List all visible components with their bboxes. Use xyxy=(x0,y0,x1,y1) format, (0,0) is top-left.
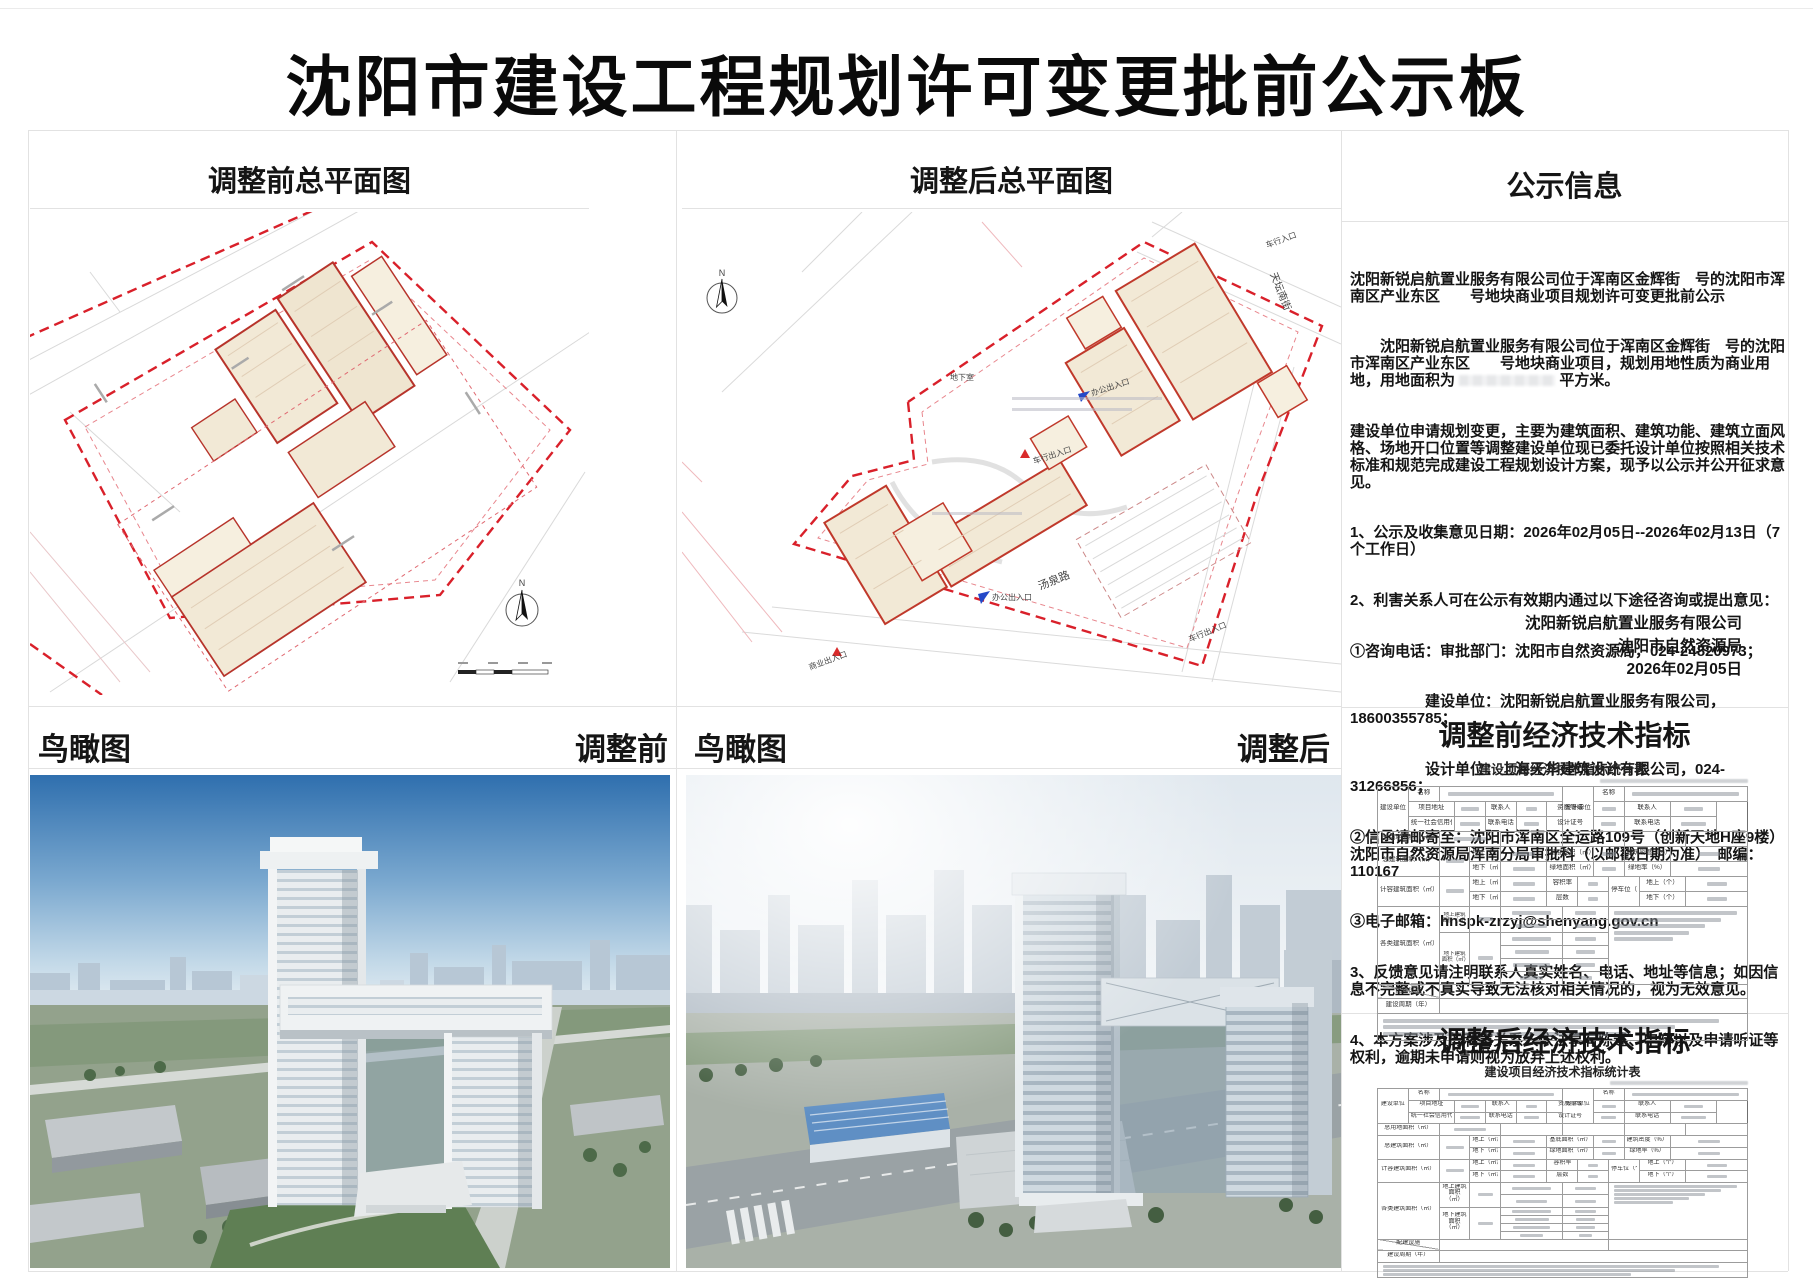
table-value-cell xyxy=(1562,831,1624,846)
table-value-cell xyxy=(1439,1239,1608,1251)
site-plan-before: N xyxy=(30,212,589,695)
table-value-cell xyxy=(1609,906,1748,984)
right-border xyxy=(1788,130,1789,1271)
table-label-cell: 建设单位 xyxy=(1378,1089,1409,1124)
aerial-after-tag: 调整后 xyxy=(1182,724,1330,769)
table-value-cell xyxy=(1686,831,1748,846)
table-value-cell xyxy=(1501,1124,1563,1136)
top-edge-line xyxy=(0,8,1813,9)
table-label-cell: 名称 xyxy=(1593,787,1624,802)
aerial-after-label: 鸟瞰图 xyxy=(694,724,787,769)
table-value-cell xyxy=(1470,1207,1501,1239)
table-label-cell: 统一社会信用代码 xyxy=(1408,1112,1454,1124)
table-label-cell: 名称 xyxy=(1408,1089,1439,1101)
header-divider xyxy=(28,130,1788,131)
table-label-cell: 联系电话 xyxy=(1624,1112,1670,1124)
table-value-cell xyxy=(1562,906,1608,919)
table-label-cell: 地下建筑面积（㎡） xyxy=(1439,932,1470,984)
table-value-cell xyxy=(1593,801,1624,816)
table-value-cell xyxy=(1562,1195,1608,1207)
economic-indicator-table: 建设单位名称设计单位名称项目地址联系人资质等级联系人统一社会信用代码联系电话设计… xyxy=(1377,786,1748,1041)
table-value-cell xyxy=(1686,1124,1748,1136)
table-label-cell: 地下（个） xyxy=(1639,891,1685,906)
table-value-cell xyxy=(1501,846,1547,861)
table-value-cell xyxy=(1501,1183,1563,1195)
table-value-cell xyxy=(1501,861,1547,876)
table-value-cell xyxy=(1501,932,1563,945)
divider-col2-col3 xyxy=(1341,130,1342,1271)
aerial-view-after xyxy=(686,775,1341,1268)
table-label-cell: 总用地面积（㎡） xyxy=(1378,1124,1440,1136)
table-value-cell xyxy=(1562,1183,1608,1195)
table-label-cell: 计容建筑面积（㎡） xyxy=(1378,1159,1440,1183)
divider-row1-row2 xyxy=(28,706,1341,707)
table-value-cell xyxy=(1562,1223,1608,1231)
table-label-cell: 地上（㎡） xyxy=(1470,846,1501,861)
plan-after-header: 调整后总平面图 xyxy=(682,158,1341,200)
redacted-area-value xyxy=(1459,375,1555,386)
table-label-cell: 设计证号 xyxy=(1547,1112,1593,1124)
notice-paragraph: 1、公示及收集意见日期：2026年02月05日--2026年02月13日（7个工… xyxy=(1350,525,1788,559)
table-label-cell: 停车位（个） xyxy=(1609,876,1640,906)
indicators-after-header: 调整后经济技术指标 xyxy=(1341,1020,1788,1060)
table-value-cell xyxy=(1439,984,1608,999)
table-value-cell xyxy=(1562,958,1608,971)
table-value-cell xyxy=(1439,1136,1470,1160)
table-value-cell xyxy=(1439,999,1747,1014)
table-label-cell: 基底面积（㎡） xyxy=(1547,1136,1593,1148)
table-label-cell: 地下建筑面积（㎡） xyxy=(1439,1207,1470,1239)
table-value-cell xyxy=(1562,971,1608,984)
table-label-cell: 总建筑面积（㎡） xyxy=(1378,1136,1440,1160)
svg-text:地下室: 地下室 xyxy=(950,372,974,382)
notice-paragraph: 沈阳新锐启航置业服务有限公司位于浑南区金辉街 号的沈阳市浑南区产业东区 号地块商… xyxy=(1350,339,1788,390)
table-label-cell: 配建设施 xyxy=(1378,984,1440,999)
table-value-cell xyxy=(1578,876,1609,891)
table-label-cell: 地上建筑面积（㎡） xyxy=(1439,906,1470,932)
table-value-cell xyxy=(1562,932,1608,945)
table-label-cell: 联系人 xyxy=(1624,801,1670,816)
table-value-cell xyxy=(1470,932,1501,984)
notice-board: 沈阳市建设工程规划许可变更批前公示板 调整前总平面图 调整后总平面图 公示信息 xyxy=(0,0,1813,1280)
aerial-view-before xyxy=(30,775,670,1268)
divider-col1-col2 xyxy=(676,130,677,1271)
table-date-smudge xyxy=(1600,779,1748,783)
table-label-cell: 统一社会信用代码 xyxy=(1408,816,1454,831)
table-value-cell xyxy=(1686,876,1748,891)
table-value-cell xyxy=(1455,801,1486,816)
table-label-cell: 名称 xyxy=(1408,787,1439,802)
table-label-cell: 建筑密度（%） xyxy=(1624,846,1670,861)
table-label-cell: 地上建筑面积（㎡） xyxy=(1439,1183,1470,1207)
table-value-cell xyxy=(1439,1159,1470,1183)
table-value-cell xyxy=(1593,861,1624,876)
notice-paragraph: 2、利害关系人可在公示有效期内通过以下途径咨询或提出意见： xyxy=(1350,593,1788,610)
table-label-cell: 地下（㎡） xyxy=(1470,891,1501,906)
signature-bureau: 沈阳市自然资源局 xyxy=(1350,635,1742,658)
notice-header: 公示信息 xyxy=(1341,163,1788,205)
table-value-cell xyxy=(1439,831,1501,846)
table-value-cell xyxy=(1470,906,1501,932)
table-value-cell xyxy=(1670,1112,1716,1124)
table-label-cell: 容积率 xyxy=(1547,1159,1578,1171)
table-label-cell: 容积率 xyxy=(1547,876,1578,891)
table-value-cell xyxy=(1609,1239,1748,1251)
table-label-cell: 绿地率（%） xyxy=(1624,861,1670,876)
table-label-cell: 各类建筑面积（㎡） xyxy=(1378,906,1440,984)
table-label-cell: 联系人 xyxy=(1624,1100,1670,1112)
table-label-cell: 地上（个） xyxy=(1639,876,1685,891)
table-value-cell xyxy=(1686,1171,1748,1183)
table-value-cell xyxy=(1670,861,1747,876)
notice-paragraph: 沈阳新锐启航置业服务有限公司位于浑南区金辉街 号的沈阳市浑南区产业东区 号地块商… xyxy=(1350,272,1788,306)
svg-text:N: N xyxy=(519,578,526,588)
table-value-cell xyxy=(1609,984,1748,999)
notice-area-suffix: 平方米。 xyxy=(1555,372,1619,389)
table-label-cell: 联系电话 xyxy=(1624,816,1670,831)
table-value-cell xyxy=(1686,1159,1748,1171)
table-value-cell xyxy=(1439,876,1470,906)
page-title: 沈阳市建设工程规划许可变更批前公示板 xyxy=(0,34,1813,130)
table-date-smudge-2 xyxy=(1610,1081,1748,1085)
table-value-cell xyxy=(1455,1100,1486,1112)
table-label-cell: 地下（㎡） xyxy=(1470,861,1501,876)
table-value-cell xyxy=(1609,1183,1748,1239)
table-label-cell: 停车位（个） xyxy=(1609,1159,1640,1183)
table-value-cell xyxy=(1670,1147,1747,1159)
table-label-cell: 地上（㎡） xyxy=(1470,876,1501,891)
site-plan-after: 车行出入口 办公出入口 办公出入口 商业出入口 汤泉路 天坛南街 车行入口 车行… xyxy=(682,212,1341,695)
table-value-cell xyxy=(1501,919,1563,932)
table-value-cell xyxy=(1562,1124,1624,1136)
divider-under-aerial-heads xyxy=(28,768,1341,769)
indicators-before-header: 调整前经济技术指标 xyxy=(1341,714,1788,754)
table-value-cell xyxy=(1670,846,1747,861)
table-label-cell: 计容建筑面积（㎡） xyxy=(1378,876,1440,906)
table-value-cell xyxy=(1501,891,1547,906)
table-value-cell xyxy=(1501,831,1563,846)
table-label-cell: 配建设施 xyxy=(1378,1239,1440,1251)
indicators-after-table-title: 建设项目经济技术指标统计表 xyxy=(1377,1063,1748,1080)
table-value-cell xyxy=(1501,1231,1563,1239)
table-value-cell xyxy=(1501,1215,1563,1223)
table-label-cell: 建设单位 xyxy=(1378,787,1409,832)
table-value-cell xyxy=(1670,816,1716,831)
economic-indicator-table: 建设单位名称设计单位名称项目地址联系人资质等级联系人统一社会信用代码联系电话设计… xyxy=(1377,1088,1748,1278)
table-label-cell: 地下（个） xyxy=(1639,1171,1685,1183)
table-label-cell: 层数 xyxy=(1547,891,1578,906)
table-value-cell xyxy=(1439,1124,1501,1136)
table-value-cell xyxy=(1670,1100,1716,1112)
table-value-cell xyxy=(1593,1147,1624,1159)
table-label-cell: 联系人 xyxy=(1485,801,1516,816)
aerial-before-label: 鸟瞰图 xyxy=(38,724,131,769)
table-label-cell: 地上（㎡） xyxy=(1470,1136,1501,1148)
table-value-cell xyxy=(1501,876,1547,891)
table-label-cell: 地下（㎡） xyxy=(1470,1171,1501,1183)
table-value-cell xyxy=(1624,1089,1748,1101)
table-value-cell xyxy=(1578,1171,1609,1183)
table-value-cell xyxy=(1439,1089,1562,1101)
notice-paragraph: 建设单位申请规划变更，主要为建筑面积、建筑功能、建筑立面风格、场地开口位置等调整… xyxy=(1350,424,1788,492)
table-value-cell xyxy=(1501,958,1563,971)
table-label-cell: 联系人 xyxy=(1485,1100,1516,1112)
divider-under-notice-head xyxy=(1341,221,1788,222)
signature-date: 2026年02月05日 xyxy=(1350,658,1742,681)
table-value-cell xyxy=(1516,1112,1547,1124)
table-value-cell xyxy=(1501,971,1563,984)
plan-before-header: 调整前总平面图 xyxy=(30,158,589,200)
table-label-cell: 建筑密度（%） xyxy=(1624,1136,1670,1148)
table-value-cell xyxy=(1562,945,1608,958)
table-label-cell: 总用地面积（㎡） xyxy=(1378,831,1440,846)
table-value-cell xyxy=(1501,1223,1563,1231)
table-value-cell xyxy=(1593,1112,1624,1124)
table-value-cell xyxy=(1516,801,1547,816)
table-value-cell xyxy=(1516,1100,1547,1112)
table-value-cell xyxy=(1501,1195,1563,1207)
table-value-cell xyxy=(1439,787,1562,802)
table-value-cell xyxy=(1624,1124,1686,1136)
table-value-cell xyxy=(1562,1231,1608,1239)
left-border xyxy=(28,130,29,1271)
table-label-cell: 绿地率（%） xyxy=(1624,1147,1670,1159)
table-label-cell: 建设周期（年） xyxy=(1378,999,1440,1014)
svg-text:N: N xyxy=(719,268,726,278)
table-value-cell xyxy=(1670,801,1716,816)
table-label-cell: 建设周期（年） xyxy=(1378,1251,1440,1263)
table-value-cell xyxy=(1501,1136,1547,1148)
table-value-cell xyxy=(1686,891,1748,906)
table-value-cell xyxy=(1624,831,1686,846)
table-value-cell xyxy=(1593,1136,1624,1148)
table-label-cell: 地下（㎡） xyxy=(1470,1147,1501,1159)
aerial-before-tag: 调整前 xyxy=(520,724,668,769)
table-value-cell xyxy=(1501,1207,1563,1215)
table-label-cell: 层数 xyxy=(1547,1171,1578,1183)
table-value-cell xyxy=(1624,787,1748,802)
table-value-cell xyxy=(1455,816,1486,831)
table-value-cell xyxy=(1455,1112,1486,1124)
table-value-cell xyxy=(1501,1171,1547,1183)
indicators-before-table-title: 建设项目经济技术指标统计表 xyxy=(1377,759,1748,778)
table-value-cell xyxy=(1378,1263,1748,1278)
table-value-cell xyxy=(1501,1159,1547,1171)
divider-under-plan1-head xyxy=(30,208,589,209)
table-value-cell xyxy=(1578,891,1609,906)
signature-block: 沈阳新锐启航置业服务有限公司 沈阳市自然资源局 2026年02月05日 xyxy=(1350,612,1742,681)
table-label-cell: 联系电话 xyxy=(1485,816,1516,831)
table-value-cell xyxy=(1562,1207,1608,1215)
table-label-cell: 各类建筑面积（㎡） xyxy=(1378,1183,1440,1239)
table-value-cell xyxy=(1593,846,1624,861)
table-value-cell xyxy=(1439,1251,1747,1263)
table-value-cell xyxy=(1501,945,1563,958)
signature-company: 沈阳新锐启航置业服务有限公司 xyxy=(1350,612,1742,635)
table-value-cell xyxy=(1439,846,1470,876)
table-label-cell: 地上（㎡） xyxy=(1470,1159,1501,1171)
table-label-cell: 项目地址 xyxy=(1408,801,1454,816)
table-label-cell: 绿地面积（㎡） xyxy=(1547,861,1593,876)
table-label-cell: 项目地址 xyxy=(1408,1100,1454,1112)
indicators-before-table: 建设单位名称设计单位名称项目地址联系人资质等级联系人统一社会信用代码联系电话设计… xyxy=(1377,786,1748,1041)
table-value-cell xyxy=(1562,1215,1608,1223)
table-label-cell: 总建筑面积（㎡） xyxy=(1378,846,1440,876)
divider-under-plan2-head xyxy=(682,208,1341,209)
table-label-cell: 地上（个） xyxy=(1639,1159,1685,1171)
indicators-after-table: 建设单位名称设计单位名称项目地址联系人资质等级联系人统一社会信用代码联系电话设计… xyxy=(1377,1088,1748,1278)
table-value-cell xyxy=(1501,1147,1547,1159)
table-value-cell xyxy=(1501,906,1563,919)
table-value-cell xyxy=(1516,816,1547,831)
table-value-cell xyxy=(1593,816,1624,831)
table-label-cell: 基底面积（㎡） xyxy=(1547,846,1593,861)
table-value-cell xyxy=(1562,919,1608,932)
table-label-cell: 设计证号 xyxy=(1547,816,1593,831)
table-value-cell xyxy=(1670,1136,1747,1148)
table-label-cell: 绿地面积（㎡） xyxy=(1547,1147,1593,1159)
table-label-cell: 联系电话 xyxy=(1485,1112,1516,1124)
table-value-cell xyxy=(1593,1100,1624,1112)
table-label-cell: 名称 xyxy=(1593,1089,1624,1101)
table-value-cell xyxy=(1470,1183,1501,1207)
table-value-cell xyxy=(1578,1159,1609,1171)
svg-text:办公出入口: 办公出入口 xyxy=(992,592,1032,602)
